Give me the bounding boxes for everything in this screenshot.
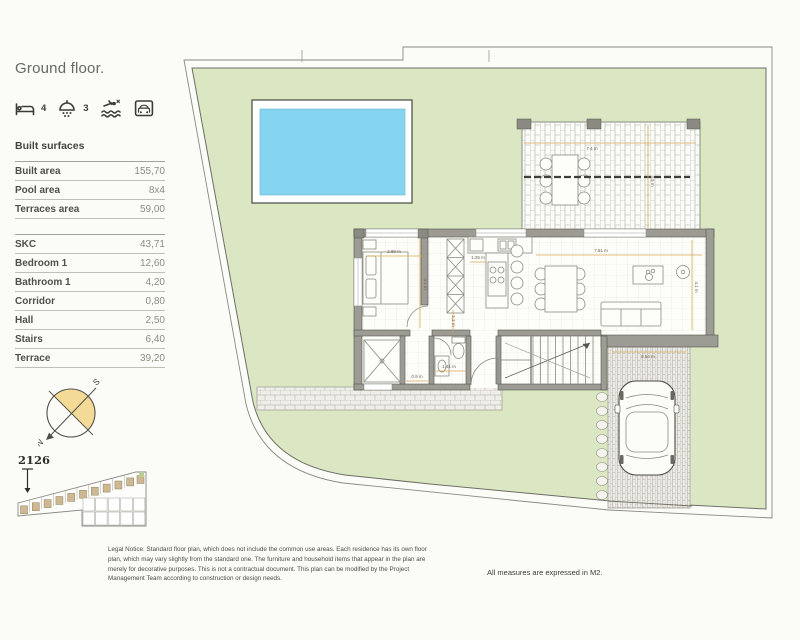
side-table bbox=[677, 266, 690, 279]
car bbox=[615, 381, 679, 475]
shower-icon bbox=[57, 99, 77, 118]
row-value: 2,50 bbox=[146, 315, 165, 326]
dim-terrace-width: 7.4 m bbox=[586, 146, 598, 151]
toilet bbox=[452, 337, 465, 343]
shower-room bbox=[364, 340, 400, 382]
car-mirror bbox=[615, 405, 620, 413]
island-counter bbox=[633, 266, 663, 284]
sidebar: Ground floor. 4 3 bbox=[15, 60, 165, 368]
dim-living-depth: 4.1 m bbox=[694, 281, 699, 293]
dim-hall-width: 1.1 m bbox=[451, 315, 456, 327]
pool-water bbox=[260, 109, 405, 195]
table-row: SKC 43,71 bbox=[15, 235, 165, 254]
terrace-pillar bbox=[587, 119, 601, 129]
bar-stool bbox=[511, 293, 523, 305]
nightstand bbox=[363, 307, 376, 316]
floor-plan-page: 2.89 m 4.1 m 1.25 m 1.1 m 7.81 m 4.1 m 1… bbox=[0, 0, 800, 640]
row-value: 0,80 bbox=[146, 296, 165, 307]
row-label: Bedroom 1 bbox=[15, 258, 67, 269]
terrace-dining-set bbox=[540, 155, 590, 205]
row-label: Terraces area bbox=[15, 204, 79, 215]
table-row: Terraces area 59,00 bbox=[15, 200, 165, 219]
built-surfaces-heading: Built surfaces bbox=[15, 140, 165, 152]
legal-notice: Legal Notice: Standard floor plan, which… bbox=[108, 545, 430, 584]
compass-south-label: S bbox=[91, 377, 102, 388]
unit-number: 2126 bbox=[18, 453, 50, 467]
compass-north-label: N bbox=[38, 437, 45, 449]
bath-count: 3 bbox=[83, 103, 88, 114]
dim-bedroom-depth: 4.1 m bbox=[423, 278, 428, 290]
site-green-mark bbox=[139, 473, 144, 477]
bed-icon bbox=[15, 100, 35, 118]
site-mini-plan: 2126 bbox=[14, 448, 156, 534]
table-row: Pool area 8x4 bbox=[15, 181, 165, 200]
row-value: 4,20 bbox=[146, 277, 165, 288]
table-row: Terrace 39,20 bbox=[15, 349, 165, 368]
dim-corridor-width: 1.25 m bbox=[471, 255, 485, 260]
table-row: Corridor 0,80 bbox=[15, 292, 165, 311]
row-value: 39,20 bbox=[140, 353, 165, 364]
row-label: Built area bbox=[15, 166, 61, 177]
wardrobe bbox=[447, 239, 464, 313]
row-value: 12,60 bbox=[140, 258, 165, 269]
row-value: 8x4 bbox=[149, 185, 165, 196]
row-label: Pool area bbox=[15, 185, 60, 196]
table-row: Built area 155,70 bbox=[15, 162, 165, 181]
row-label: Corridor bbox=[15, 296, 55, 307]
table-row: Hall 2,50 bbox=[15, 311, 165, 330]
measures-note: All measures are expressed in M2. bbox=[487, 568, 602, 577]
terrace-pillar bbox=[517, 119, 531, 129]
row-value: 155,70 bbox=[134, 166, 165, 177]
terrace bbox=[517, 119, 700, 230]
nightstand bbox=[363, 240, 376, 249]
room-areas-table: SKC 43,71 Bedroom 1 12,60 Bathroom 1 4,2… bbox=[15, 234, 165, 368]
row-value: 43,71 bbox=[140, 239, 165, 250]
row-label: Terrace bbox=[15, 353, 50, 364]
row-label: Stairs bbox=[15, 334, 43, 345]
garage-icon bbox=[134, 99, 154, 118]
pool-icon bbox=[100, 99, 122, 118]
table-row: Bathroom 1 4,20 bbox=[15, 273, 165, 292]
dim-wc-width: 0.9 m bbox=[411, 374, 423, 379]
row-value: 59,00 bbox=[140, 204, 165, 215]
sofa bbox=[601, 302, 661, 326]
bed-count: 4 bbox=[41, 103, 46, 114]
row-value: 6,40 bbox=[146, 334, 165, 345]
page-title: Ground floor. bbox=[15, 60, 165, 77]
dim-bedroom-width: 2.89 m bbox=[387, 249, 401, 254]
row-label: Hall bbox=[15, 315, 33, 326]
bar-stool bbox=[511, 245, 523, 257]
terrace-pillar bbox=[687, 119, 700, 129]
unit-pin bbox=[22, 469, 33, 493]
table-row: Bedroom 1 12,60 bbox=[15, 254, 165, 273]
driveway bbox=[608, 347, 690, 508]
compass: S N bbox=[38, 377, 106, 449]
car-mirror bbox=[674, 405, 679, 413]
table-row: Stairs 6,40 bbox=[15, 330, 165, 349]
amenities-row: 4 3 bbox=[15, 99, 165, 118]
dim-living-width: 7.81 m bbox=[594, 248, 608, 253]
bar-stool bbox=[511, 261, 523, 273]
dim-driveway-length: 8.54 m bbox=[641, 354, 655, 359]
built-surfaces-table: Built area 155,70 Pool area 8x4 Terraces… bbox=[15, 161, 165, 219]
dim-terrace-depth: 4.5 m bbox=[650, 175, 655, 187]
swimming-pool bbox=[252, 100, 412, 203]
row-label: Bathroom 1 bbox=[15, 277, 71, 288]
dim-bathroom-width: 1.41 m bbox=[442, 364, 456, 369]
bar-stool bbox=[511, 277, 523, 289]
row-label: SKC bbox=[15, 239, 36, 250]
dining-set bbox=[535, 266, 585, 312]
